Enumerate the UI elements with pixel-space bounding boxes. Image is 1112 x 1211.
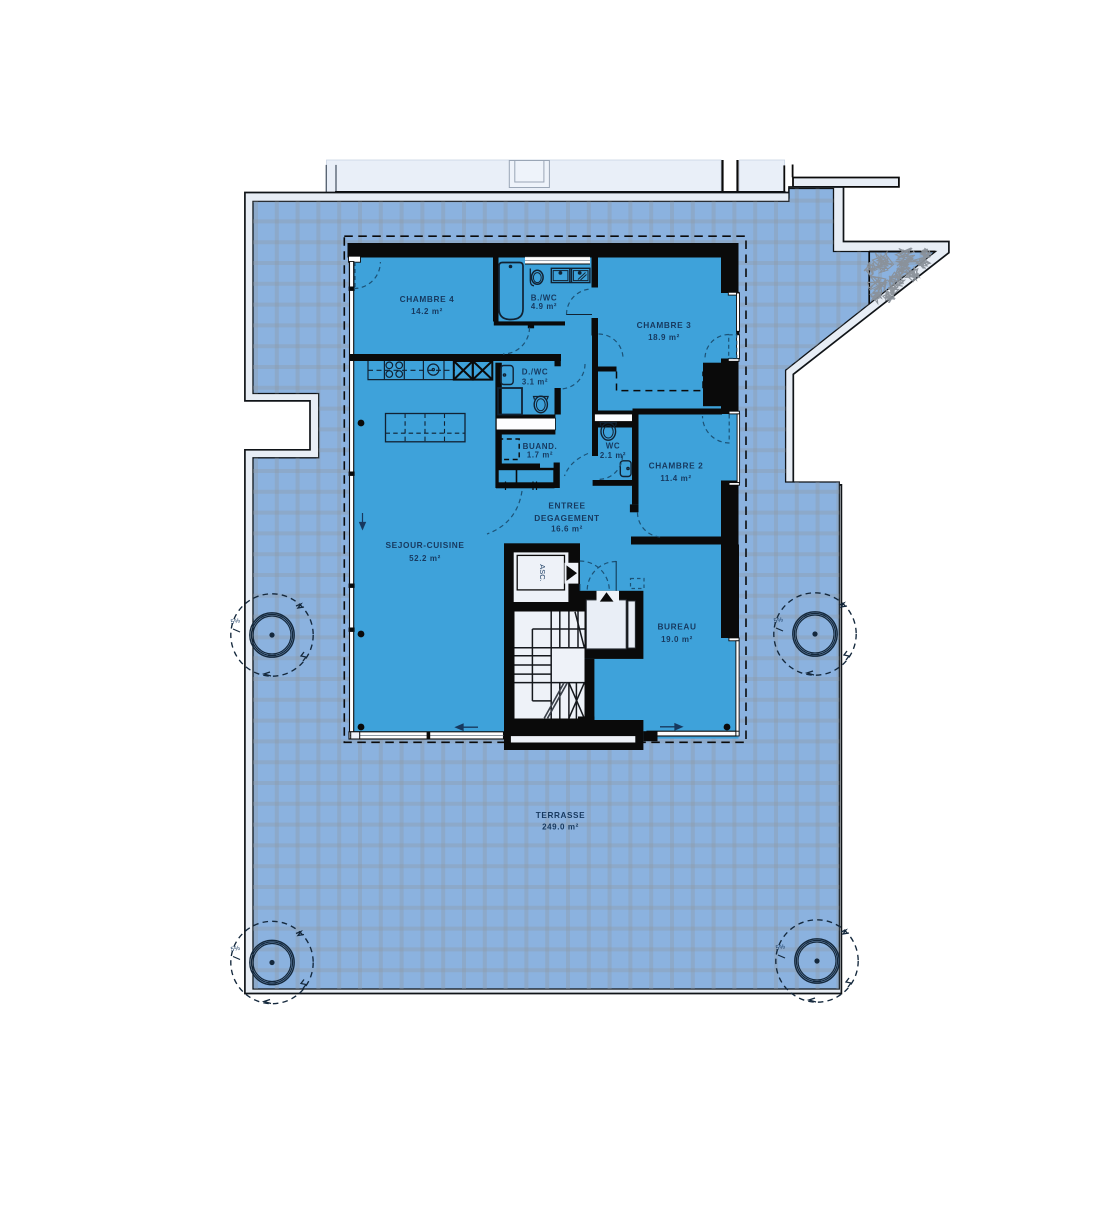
- svg-text:16.6 m²: 16.6 m²: [551, 525, 583, 534]
- svg-text:WC: WC: [606, 442, 621, 451]
- svg-text:DEGAGEMENT: DEGAGEMENT: [534, 513, 599, 523]
- svg-text:11.4 m²: 11.4 m²: [660, 474, 691, 483]
- svg-text:3.1 m²: 3.1 m²: [522, 378, 548, 387]
- svg-text:19.0 m²: 19.0 m²: [661, 635, 693, 644]
- svg-text:BUREAU: BUREAU: [657, 622, 696, 632]
- svg-text:52.2 m²: 52.2 m²: [409, 554, 441, 563]
- svg-text:D./WC: D./WC: [522, 368, 549, 377]
- svg-text:4.9 m²: 4.9 m²: [531, 302, 557, 311]
- svg-text:TERRASSE: TERRASSE: [536, 811, 585, 820]
- svg-text:CHAMBRE 4: CHAMBRE 4: [400, 294, 455, 304]
- svg-text:2.1 m²: 2.1 m²: [600, 451, 626, 460]
- svg-text:ASC.: ASC.: [538, 564, 547, 582]
- svg-text:249.0 m²: 249.0 m²: [542, 823, 579, 832]
- svg-text:14.2 m²: 14.2 m²: [411, 307, 443, 316]
- svg-text:18.9 m²: 18.9 m²: [648, 333, 680, 342]
- svg-text:SEJOUR-CUISINE: SEJOUR-CUISINE: [386, 540, 465, 550]
- svg-text:ENTREE: ENTREE: [548, 501, 585, 511]
- svg-text:CHAMBRE 2: CHAMBRE 2: [649, 461, 704, 471]
- svg-text:1.7 m²: 1.7 m²: [527, 451, 553, 460]
- svg-text:CHAMBRE 3: CHAMBRE 3: [637, 320, 692, 330]
